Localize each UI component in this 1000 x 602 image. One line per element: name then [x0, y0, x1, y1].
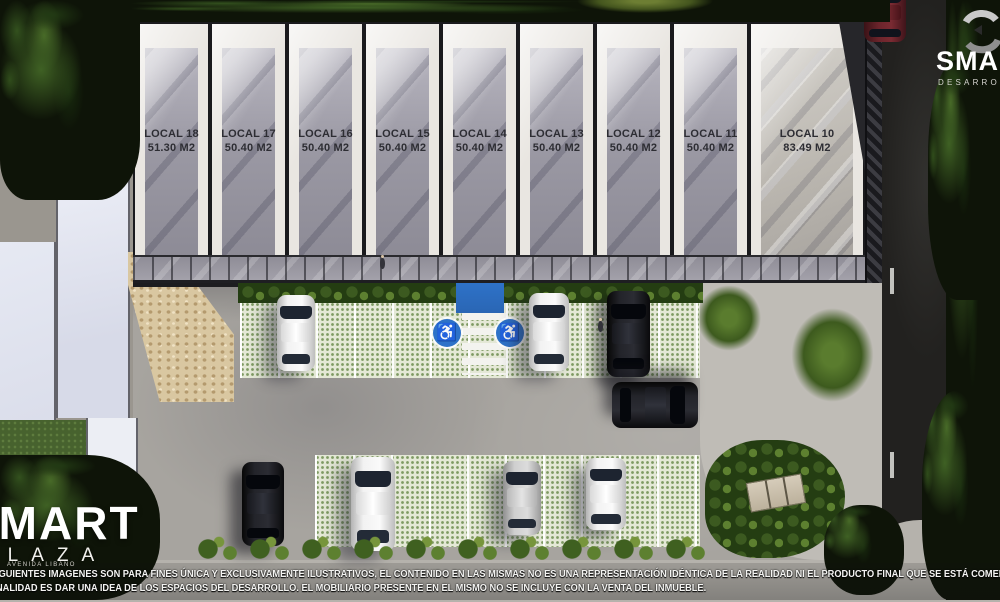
unit-local-18: LOCAL 1851.30 M2 [133, 22, 210, 257]
unit-label: LOCAL 15 [366, 128, 439, 142]
parked-car-black [607, 291, 650, 377]
unit-area: 50.40 M2 [212, 142, 285, 156]
lane-marking [890, 268, 894, 294]
unit-area: 50.40 M2 [674, 142, 747, 156]
accessible-path [456, 283, 504, 313]
unit-tag: LOCAL 1250.40 M2 [597, 128, 670, 155]
unit-area: 50.40 M2 [520, 142, 593, 156]
person-figure [598, 321, 603, 332]
person-figure [380, 258, 385, 269]
palm-tree [780, 295, 885, 415]
site-plan-rendering: { "branding": { "developer": { "name": "… [0, 0, 1000, 600]
project-logo-text: SMART [0, 496, 140, 550]
unit-tag: LOCAL 1650.40 M2 [289, 128, 362, 155]
developer-logo-subtitle: DESARROLLOS [938, 78, 1000, 87]
unit-tag: LOCAL 1150.40 M2 [674, 128, 747, 155]
unit-tag: LOCAL 1450.40 M2 [443, 128, 516, 155]
unit-label: LOCAL 11 [674, 128, 747, 142]
unit-label: LOCAL 14 [443, 128, 516, 142]
tree-canopy-top [130, 0, 890, 22]
unit-area: 50.40 M2 [443, 142, 516, 156]
handicap-parking-icon: ♿ [496, 319, 524, 347]
unit-label: LOCAL 16 [289, 128, 362, 142]
unit-area: 50.40 M2 [366, 142, 439, 156]
tree-cluster-right [928, 60, 1000, 300]
suv-black-drive-lane [612, 382, 698, 428]
storefront-walkway [133, 255, 865, 283]
retail-building: LOCAL 1851.30 M2 LOCAL 1750.40 M2 LOCAL … [133, 22, 882, 287]
tree-canopy-top-left [0, 0, 140, 200]
unit-local-12: LOCAL 1250.40 M2 [595, 22, 672, 257]
unit-area: 83.49 M2 [751, 142, 863, 156]
developer-logo-text: SMART [936, 46, 1000, 77]
unit-tag: LOCAL 1750.40 M2 [212, 128, 285, 155]
unit-local-11: LOCAL 1150.40 M2 [672, 22, 749, 257]
side-louver-panel [865, 22, 882, 283]
lane-marking [890, 452, 894, 478]
parked-car-white [586, 458, 626, 530]
unit-label: LOCAL 12 [597, 128, 670, 142]
palm-tree [688, 276, 770, 360]
disclaimer-line-1: IGUIENTES IMAGENES SON PARA FINES ÚNICA … [0, 568, 1000, 580]
unit-local-14: LOCAL 1450.40 M2 [441, 22, 518, 257]
unit-label: LOCAL 10 [751, 128, 863, 142]
parked-car-white [529, 293, 569, 371]
unit-tag: LOCAL 1550.40 M2 [366, 128, 439, 155]
unit-label: LOCAL 18 [135, 128, 208, 142]
unit-tag: LOCAL 1851.30 M2 [135, 128, 208, 155]
unit-local-17: LOCAL 1750.40 M2 [210, 22, 287, 257]
unit-label: LOCAL 13 [520, 128, 593, 142]
unit-area: 51.30 M2 [135, 142, 208, 156]
unit-tag: LOCAL 1083.49 M2 [751, 128, 863, 155]
unit-local-15: LOCAL 1550.40 M2 [364, 22, 441, 257]
handicap-parking-icon: ♿ [433, 319, 461, 347]
unit-local-16: LOCAL 1650.40 M2 [287, 22, 364, 257]
disclaimer-line-2: NALIDAD ES DAR UNA IDEA DE LOS ESPACIOS … [0, 582, 706, 594]
unit-area: 50.40 M2 [597, 142, 670, 156]
unit-label: LOCAL 17 [212, 128, 285, 142]
unit-tag: LOCAL 1350.40 M2 [520, 128, 593, 155]
unit-area: 50.40 M2 [289, 142, 362, 156]
parked-car-silver [503, 461, 541, 535]
unit-local-13: LOCAL 1350.40 M2 [518, 22, 595, 257]
parked-car-white [277, 295, 315, 371]
